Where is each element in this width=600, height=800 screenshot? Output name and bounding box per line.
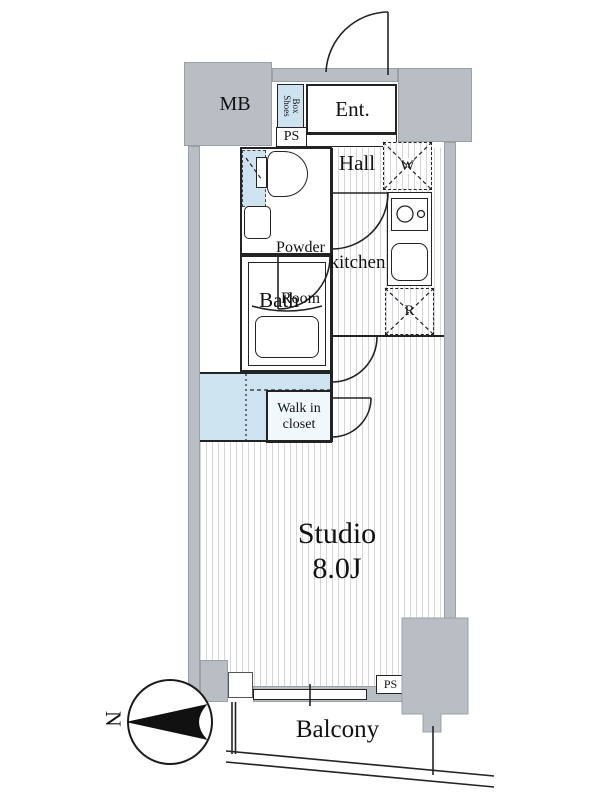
site-boundary-lower — [226, 762, 494, 787]
balcony-window — [253, 689, 367, 700]
kitchen-label: kitchen — [320, 253, 395, 274]
shoes-box-line1: Shoes — [281, 95, 290, 117]
studio-name-label: Studio — [277, 518, 397, 550]
ps-top-label: PS — [284, 129, 300, 144]
wall-top-right-block — [398, 68, 472, 142]
ps-bottom-label: PS — [384, 678, 397, 691]
compass-arrow — [128, 705, 206, 739]
closet-label-line2: closet — [283, 417, 316, 432]
entrance-door-arc — [326, 12, 388, 72]
balcony-left-edge — [232, 702, 236, 754]
compass-north-label: N — [101, 706, 125, 732]
stove — [391, 198, 428, 231]
bath-label: Bath — [248, 289, 310, 312]
wall-top — [272, 68, 398, 82]
entrance-label: Ent. — [315, 98, 390, 121]
balcony-label: Balcony — [275, 716, 400, 743]
fridge-label: R — [402, 303, 416, 319]
shoes-box: Shoes Box — [277, 84, 304, 128]
shoes-box-label: Shoes Box — [281, 95, 299, 117]
studio-size-label: 8.0J — [277, 553, 397, 585]
closet-label-line1: Walk in — [277, 401, 321, 416]
floor-plan: Shoes Box PS Walk in closet W R PS — [0, 0, 600, 800]
ps-top-box: PS — [276, 127, 307, 147]
wall-right — [444, 142, 456, 690]
mb-label: MB — [205, 94, 265, 116]
hall-label: Hall — [322, 152, 392, 175]
wall-left — [188, 146, 200, 702]
shoes-box-line2: Box — [290, 98, 299, 113]
walk-in-closet-box: Walk in closet — [266, 390, 332, 443]
fridge-space: R — [385, 288, 434, 335]
site-boundary-upper — [226, 751, 494, 776]
studio-floor-upper — [332, 338, 444, 442]
toilet-tank — [256, 157, 267, 188]
washer-label: W — [398, 158, 416, 174]
bottom-left-landing — [228, 672, 253, 698]
wall-bottom-left-step — [200, 660, 228, 702]
kitchen-sink — [391, 243, 428, 281]
ps-bottom-box: PS — [376, 675, 405, 694]
